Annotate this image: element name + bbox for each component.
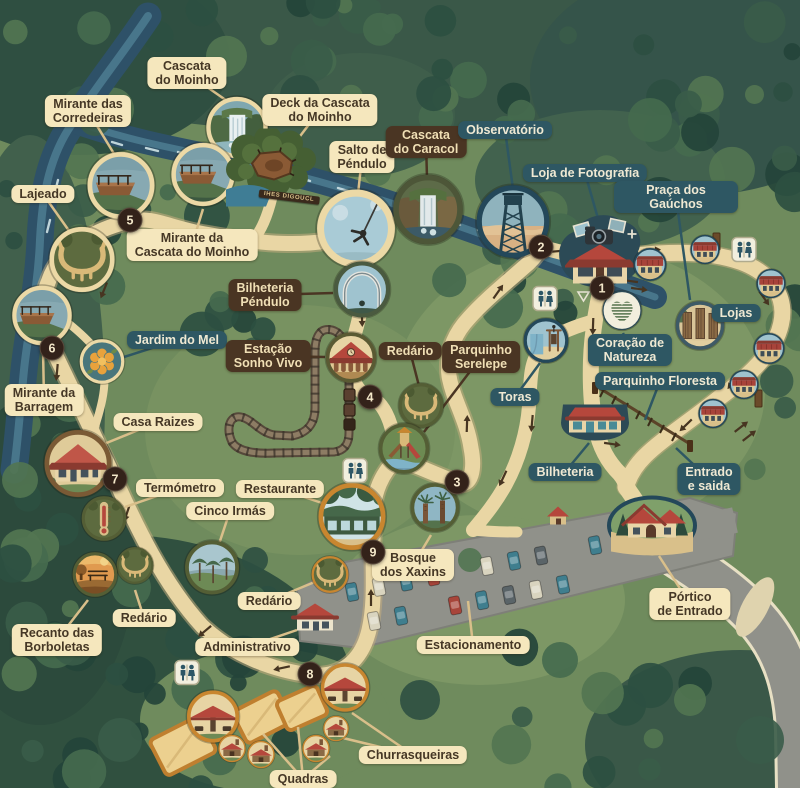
park-map: IHES DIGOUCL Cascata do MoinhoMirante da… xyxy=(0,0,800,788)
restroom-icon xyxy=(174,660,200,691)
restroom-icon xyxy=(532,286,558,317)
restroom-icon xyxy=(731,237,757,268)
restroom-icon xyxy=(342,458,368,489)
restrooms-layer xyxy=(0,0,800,788)
